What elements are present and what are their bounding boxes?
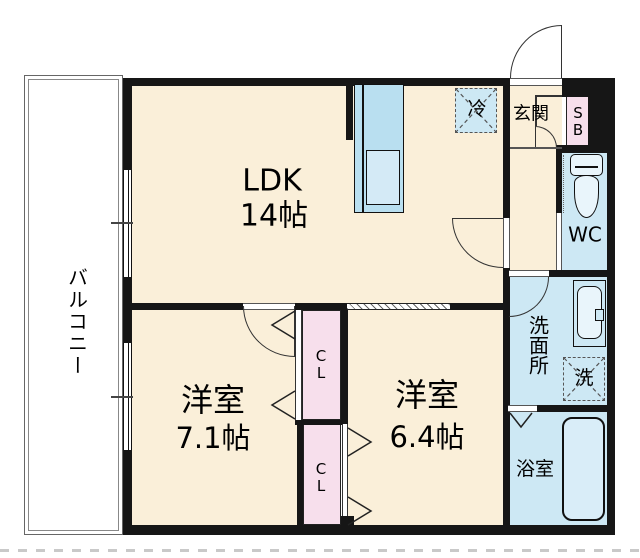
washing-machine-label: 洗	[574, 369, 593, 389]
washroom-label: 洗面所	[527, 315, 548, 375]
refrigerator-label: 冷	[467, 100, 486, 120]
bedroom-right-area-label: 6.4帖	[389, 422, 464, 452]
bedroom-left-area-label: 7.1帖	[175, 423, 250, 453]
entrance-label: 玄関	[513, 106, 549, 125]
balcony-label: バルコニー	[66, 267, 87, 377]
ldk-area-label: 14帖	[240, 200, 308, 232]
closet-upper-label: CL	[313, 348, 329, 382]
site-boundary-dashed-line	[0, 549, 640, 552]
bathroom-label: 浴室	[516, 460, 554, 480]
bedroom-left-label: 洋室	[181, 384, 245, 418]
closet-lower-fold-door-mark	[348, 497, 371, 525]
ldk-label: LDK	[242, 165, 302, 197]
closet-upper-fold-door-mark	[272, 311, 295, 339]
floorplan: LDK 14帖 洋室 7.1帖 洋室 6.4帖 玄関 WC 洗面所 浴室 バルコ…	[0, 0, 640, 558]
closet-upper-fold-door-mark	[272, 391, 295, 419]
shoebox-label: SB	[570, 105, 586, 139]
bathroom-fold-door-mark	[510, 413, 532, 427]
toilet-label: WC	[568, 225, 602, 246]
bedroom-right-label: 洋室	[395, 379, 459, 413]
closet-lower-fold-door-mark	[348, 428, 371, 456]
closet-lower-label: CL	[313, 461, 329, 495]
